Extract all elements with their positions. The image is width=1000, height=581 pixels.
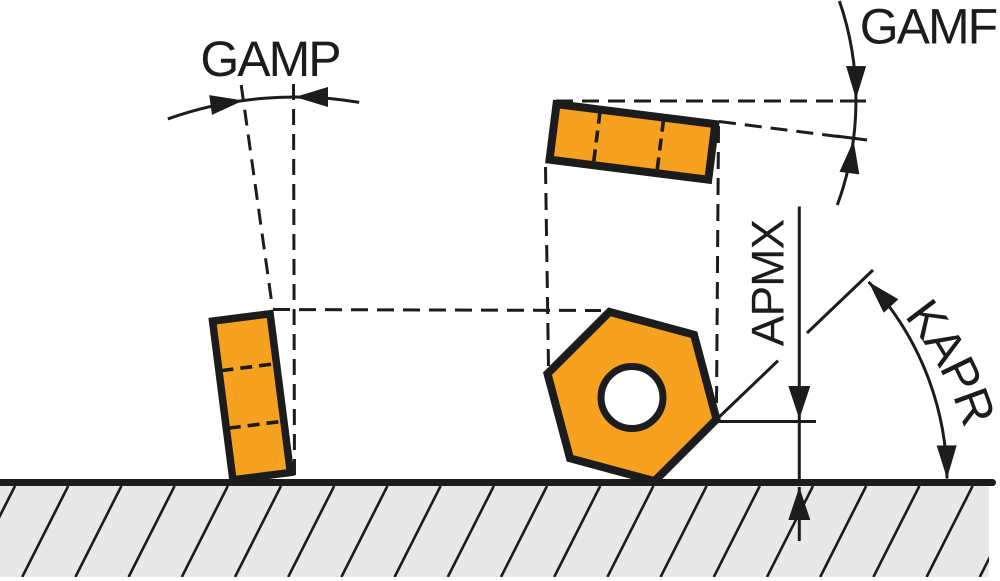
svg-text:APMX: APMX	[742, 220, 794, 347]
svg-text:GAMF: GAMF	[860, 0, 997, 55]
svg-text:KAPR: KAPR	[895, 290, 1000, 431]
svg-text:GAMP: GAMP	[200, 31, 339, 87]
